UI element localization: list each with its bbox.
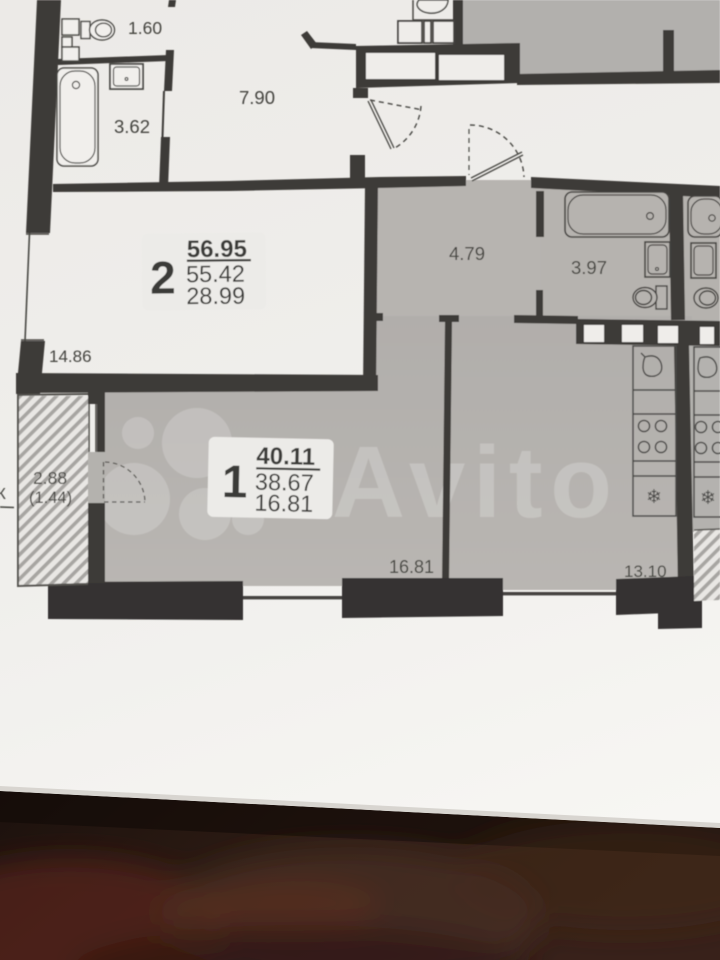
svg-text:3.97: 3.97 bbox=[571, 257, 607, 278]
svg-text:К: К bbox=[0, 486, 7, 503]
svg-text:40.11: 40.11 bbox=[256, 443, 315, 471]
svg-text:2: 2 bbox=[150, 251, 176, 303]
svg-text:❄: ❄ bbox=[700, 488, 716, 509]
svg-text:16.81: 16.81 bbox=[389, 557, 434, 577]
svg-text:3.62: 3.62 bbox=[114, 116, 150, 137]
svg-text:(1.44): (1.44) bbox=[29, 489, 72, 507]
svg-text:2.88: 2.88 bbox=[33, 468, 67, 488]
svg-text:16.81: 16.81 bbox=[254, 490, 313, 517]
svg-text:28.99: 28.99 bbox=[186, 283, 245, 310]
svg-text:❄: ❄ bbox=[646, 487, 662, 508]
svg-text:4.79: 4.79 bbox=[449, 243, 485, 264]
svg-text:1.60: 1.60 bbox=[128, 18, 162, 38]
svg-text:7.90: 7.90 bbox=[239, 87, 275, 108]
svg-text:1: 1 bbox=[221, 455, 248, 508]
svg-text:56.95: 56.95 bbox=[187, 236, 247, 264]
svg-text:13.10: 13.10 bbox=[624, 562, 667, 581]
svg-text:Avito: Avito bbox=[332, 427, 612, 539]
svg-text:14.86: 14.86 bbox=[49, 347, 92, 366]
